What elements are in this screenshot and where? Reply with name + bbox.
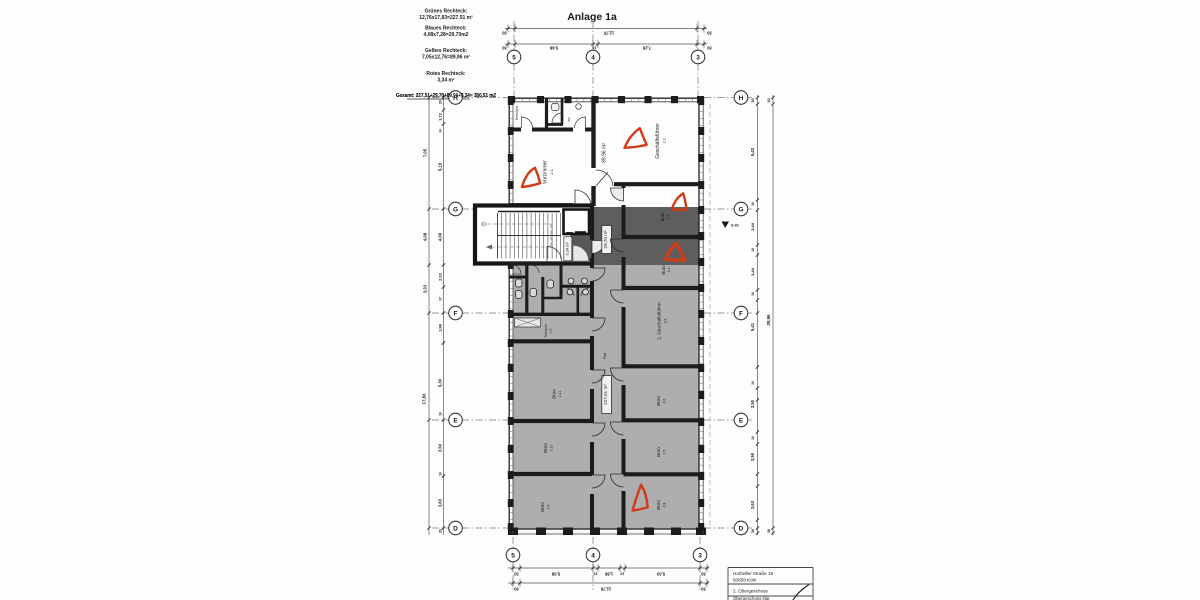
svg-text:30: 30	[751, 529, 755, 533]
svg-text:F: F	[454, 310, 458, 317]
svg-text:E: E	[453, 417, 458, 424]
svg-text:5,38: 5,38	[551, 572, 560, 577]
svg-text:3: 3	[698, 552, 702, 559]
svg-text:Gelbes Rechteck:: Gelbes Rechteck:	[425, 48, 467, 54]
svg-text:Büro: Büro	[656, 396, 661, 406]
svg-text:Büro: Büro	[543, 443, 548, 453]
svg-text:S-01: S-01	[731, 224, 739, 228]
svg-text:Büro: Büro	[540, 502, 545, 512]
svg-text:2.3: 2.3	[666, 215, 670, 220]
svg-text:30: 30	[701, 572, 706, 577]
svg-text:10: 10	[592, 45, 596, 49]
svg-text:12,76x17,83=227.51 m²: 12,76x17,83=227.51 m²	[419, 15, 473, 21]
svg-text:Büro: Büro	[656, 447, 661, 457]
svg-text:Vorzimmer: Vorzimmer	[543, 160, 549, 184]
svg-text:30: 30	[514, 572, 519, 577]
svg-text:WC: WC	[567, 117, 571, 122]
svg-text:14: 14	[439, 129, 443, 133]
svg-text:12,75: 12,75	[603, 30, 614, 35]
svg-text:10: 10	[439, 412, 443, 416]
svg-text:30: 30	[502, 45, 507, 50]
svg-text:5,30: 5,30	[438, 378, 443, 387]
svg-text:10: 10	[751, 436, 755, 440]
svg-text:1,98: 1,98	[438, 323, 443, 332]
svg-text:3,44: 3,44	[750, 267, 755, 276]
svg-text:20: 20	[439, 100, 443, 104]
svg-text:10: 10	[751, 381, 755, 385]
svg-text:17: 17	[439, 297, 443, 301]
svg-text:Gesamt: 227,51+29,70+89,96+3,3: Gesamt: 227,51+29,70+89,96+3,34= 350,51 …	[396, 93, 496, 99]
svg-text:3,63: 3,63	[438, 498, 443, 507]
svg-text:F: F	[739, 310, 743, 317]
svg-text:10: 10	[751, 292, 755, 296]
svg-text:7,05: 7,05	[423, 148, 428, 157]
svg-text:2.12: 2.12	[549, 328, 553, 334]
svg-text:3,34 m²: 3,34 m²	[564, 241, 569, 255]
svg-text:7,05x12,76=89,96 m²: 7,05x12,76=89,96 m²	[422, 54, 470, 60]
svg-text:3,33: 3,33	[423, 284, 428, 293]
svg-text:30: 30	[767, 529, 771, 533]
svg-text:2.8: 2.8	[663, 503, 667, 508]
svg-text:4,08: 4,08	[438, 232, 443, 241]
svg-text:Anlage 1a: Anlage 1a	[567, 11, 617, 23]
svg-text:3,50: 3,50	[438, 443, 443, 452]
svg-text:12,76: 12,76	[600, 587, 611, 592]
svg-text:Rotes Rechteck:: Rotes Rechteck:	[426, 71, 466, 77]
svg-text:3,50: 3,50	[750, 399, 755, 408]
svg-text:7,28: 7,28	[642, 45, 651, 50]
svg-text:Teeküche: Teeküche	[515, 106, 519, 121]
svg-text:28,96: 28,96	[766, 314, 771, 326]
svg-text:2. Obergeschoss: 2. Obergeschoss	[733, 589, 768, 594]
svg-text:30: 30	[767, 98, 771, 102]
svg-text:Grünes Rechteck:: Grünes Rechteck:	[425, 9, 468, 15]
svg-text:Büro: Büro	[656, 500, 661, 510]
svg-text:2.2: 2.2	[663, 139, 667, 144]
svg-text:H: H	[739, 95, 744, 102]
svg-text:10: 10	[751, 202, 755, 206]
svg-text:10: 10	[439, 472, 443, 476]
svg-text:5,98: 5,98	[549, 45, 558, 50]
svg-text:3,63: 3,63	[750, 500, 755, 509]
svg-text:E: E	[739, 417, 744, 424]
svg-text:5,41: 5,41	[750, 322, 755, 331]
svg-text:30: 30	[502, 30, 507, 35]
svg-text:17,83: 17,83	[422, 393, 427, 405]
svg-text:50858 Köln: 50858 Köln	[733, 578, 757, 583]
svg-text:30: 30	[514, 587, 519, 592]
svg-text:Büro: Büro	[552, 389, 557, 399]
svg-text:Obergeschoss klar: Obergeschoss klar	[733, 596, 770, 600]
svg-text:10: 10	[593, 572, 597, 576]
svg-text:2.7: 2.7	[663, 450, 667, 455]
svg-text:2. Geschäftsführer: 2. Geschäftsführer	[657, 302, 662, 340]
svg-text:30: 30	[701, 587, 706, 592]
svg-text:2.6: 2.6	[663, 399, 667, 404]
svg-text:2.4: 2.4	[667, 268, 671, 273]
svg-text:1,72: 1,72	[438, 112, 443, 121]
svg-text:4,08x7,28=29,70m2: 4,08x7,28=29,70m2	[424, 32, 469, 38]
svg-text:89,96 m²: 89,96 m²	[602, 143, 608, 163]
svg-text:4: 4	[591, 552, 595, 559]
svg-text:2.11: 2.11	[558, 391, 562, 397]
svg-text:5: 5	[512, 54, 516, 61]
svg-text:1,85: 1,85	[604, 572, 613, 577]
svg-text:2.5: 2.5	[664, 319, 668, 324]
svg-text:D: D	[739, 525, 744, 532]
svg-text:2,33: 2,33	[438, 272, 443, 281]
svg-text:3,34 m²: 3,34 m²	[437, 77, 455, 83]
svg-text:5: 5	[511, 552, 515, 559]
svg-text:Flur: Flur	[603, 352, 607, 359]
svg-text:5,33: 5,33	[656, 572, 665, 577]
svg-text:5,19: 5,19	[438, 162, 443, 171]
svg-text:Büro: Büro	[660, 212, 665, 222]
svg-text:G: G	[453, 206, 458, 213]
svg-text:3: 3	[696, 54, 700, 61]
svg-text:30: 30	[751, 98, 755, 102]
svg-text:Blaues Rechteck:: Blaues Rechteck:	[425, 26, 467, 32]
svg-text:10: 10	[751, 248, 755, 252]
svg-text:D: D	[453, 525, 458, 532]
svg-text:10: 10	[620, 572, 624, 576]
svg-text:30: 30	[707, 45, 712, 50]
svg-text:2.9: 2.9	[547, 505, 551, 510]
svg-text:G: G	[738, 206, 743, 213]
svg-text:29,70 m²: 29,70 m²	[603, 230, 608, 249]
svg-text:20: 20	[439, 529, 443, 533]
svg-text:2.10: 2.10	[550, 445, 554, 452]
svg-text:227,51 m²: 227,51 m²	[603, 384, 608, 405]
svg-text:Horbeller Straße 19: Horbeller Straße 19	[733, 571, 774, 576]
svg-text:30: 30	[707, 30, 712, 35]
svg-text:4,08: 4,08	[423, 232, 428, 241]
svg-text:5,43: 5,43	[750, 147, 755, 156]
svg-text:4: 4	[591, 54, 595, 61]
svg-text:Teeküche: Teeküche	[544, 324, 548, 338]
svg-text:3,50: 3,50	[750, 452, 755, 461]
svg-text:Büro: Büro	[661, 265, 666, 275]
svg-text:3,44: 3,44	[750, 222, 755, 231]
svg-text:2.1: 2.1	[550, 170, 554, 175]
svg-text:Geschäftsführer: Geschäftsführer	[655, 123, 661, 159]
